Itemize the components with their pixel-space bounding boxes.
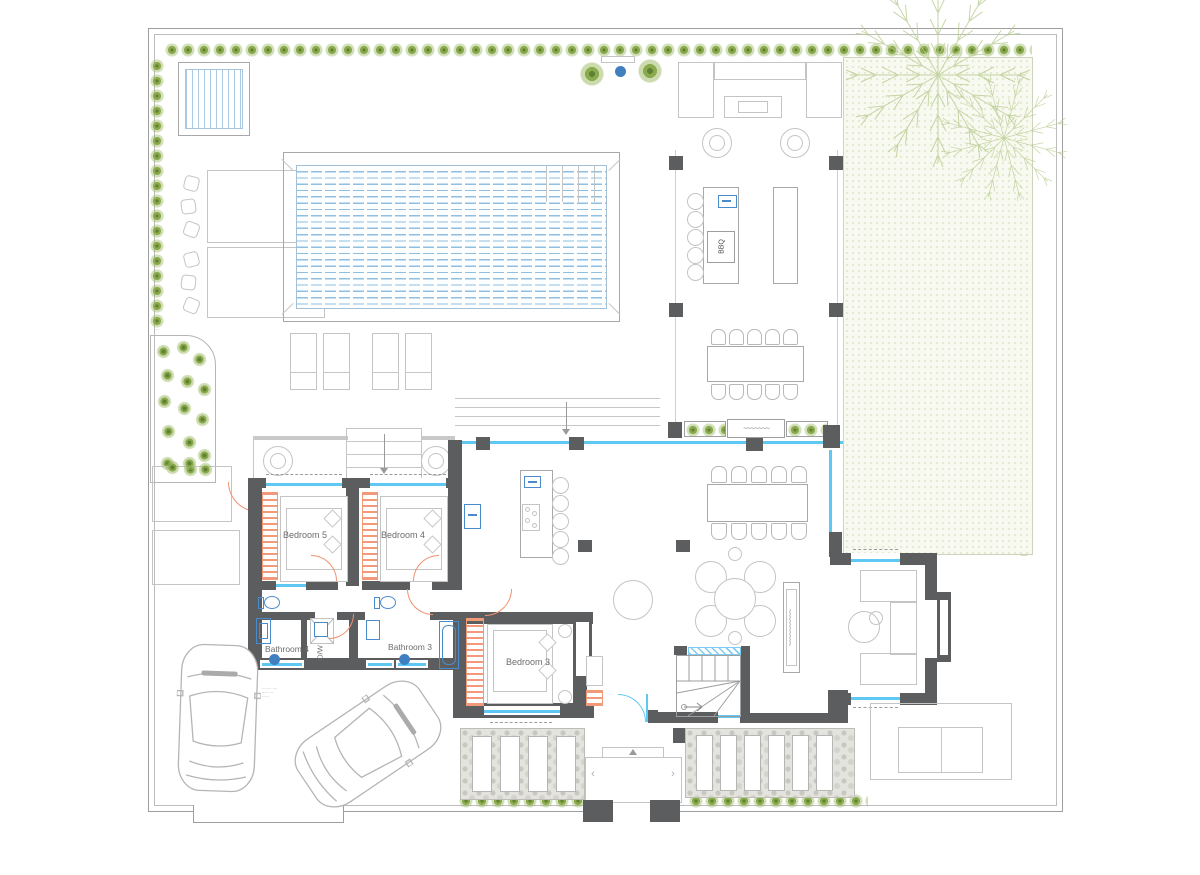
bathroom-vanity (366, 620, 380, 640)
pool-step (562, 166, 563, 202)
lounge-chair (180, 274, 196, 290)
sun-lounger (323, 333, 350, 390)
sofa-section (860, 570, 917, 602)
sun-lounger-backrest (323, 372, 350, 373)
cooktop-burner (525, 507, 530, 512)
glass-wall-east (829, 450, 832, 533)
lounge-chair (180, 198, 197, 215)
planter-box (786, 421, 828, 437)
outdoor-counter (773, 187, 798, 284)
garden-step-line (455, 407, 660, 408)
bedside-table (558, 690, 572, 704)
column (578, 540, 592, 552)
toilet-bowl (380, 596, 396, 609)
shrub-icon (160, 368, 175, 383)
gate-pillar (650, 800, 680, 822)
dining-chair (751, 466, 767, 483)
shrub-icon (192, 352, 207, 367)
bar-stool (552, 495, 569, 512)
shrub-icon (161, 424, 176, 439)
shrub-icon (197, 382, 212, 397)
bathroom3-label: Bathroom 3 (372, 642, 448, 652)
toilet-bowl (264, 596, 280, 609)
dw-label: D/W (316, 639, 325, 667)
shrub-icon (198, 462, 213, 477)
pergola-plank (528, 736, 548, 792)
pergola-plank (792, 735, 809, 791)
window-glass (262, 663, 302, 666)
staircase (676, 655, 742, 717)
dining-chair (791, 466, 807, 483)
car (173, 641, 262, 796)
palm-tree-icon (934, 68, 1074, 208)
garage-annotation: -------- ---- ------ --- ------ (262, 686, 332, 698)
sun-lounger-backrest (405, 372, 432, 373)
side-stool (728, 547, 742, 561)
column (569, 437, 584, 450)
wall-bedroom-east (448, 440, 462, 586)
bar-stool (687, 193, 704, 210)
driveway-gate-jamb (193, 805, 194, 823)
bbq-grill: BBQ (707, 231, 735, 263)
dining-chair (751, 523, 767, 540)
arrow-up-icon (629, 749, 637, 755)
kitchen-sink-faucet (528, 481, 537, 483)
pool-step (578, 166, 579, 202)
column (476, 437, 490, 450)
hedge-row-left (149, 58, 165, 330)
garden-step-line (455, 398, 660, 399)
bar-stool (552, 477, 569, 494)
outdoor-dining-table (707, 346, 804, 382)
wall-stair-top (674, 646, 687, 655)
wall-segment (262, 581, 276, 590)
pool-water (296, 165, 607, 309)
fireplace-squiggle: ~~~~~~~~~~ (787, 593, 795, 663)
shrub-icon (180, 374, 195, 389)
roof-overhang-dashed (266, 474, 342, 475)
colonnade-line (837, 150, 838, 437)
dining-chair (771, 523, 787, 540)
bar-stool (552, 531, 569, 548)
outdoor-sofa-back (714, 62, 806, 80)
sun-lounger (290, 333, 317, 390)
dining-chair (731, 466, 747, 483)
sofa-section (860, 653, 917, 685)
dining-chair (783, 384, 798, 400)
window-glass (266, 483, 342, 486)
dining-chair (711, 466, 727, 483)
entry-door-leaf (646, 694, 648, 722)
terrace-edge (253, 436, 348, 440)
bbq-label: BBQ (719, 235, 726, 259)
dining-chair (747, 384, 762, 400)
bar-stool (552, 548, 569, 565)
pergola-plank (556, 736, 576, 792)
shrub-icon (182, 456, 197, 471)
cooktop-burner (525, 518, 530, 523)
column (669, 303, 683, 317)
window-glass (851, 559, 900, 562)
sun-lounger (372, 333, 399, 390)
pouf (613, 580, 653, 620)
wall-segment (648, 710, 658, 723)
window-glass (368, 663, 392, 666)
cooktop-burner (532, 511, 537, 516)
side-stool (728, 631, 742, 645)
round-lounge-chair-cushion (709, 135, 725, 151)
pergola-plank (816, 735, 833, 791)
window-glass (370, 483, 446, 486)
bush-icon (637, 58, 663, 84)
pergola-plank (500, 736, 520, 792)
shower-drain (399, 654, 410, 665)
wall-oven-handle (468, 514, 477, 516)
sun-lounger (405, 333, 432, 390)
steps-direction-arrow (384, 434, 385, 468)
annotation-line: ------ (262, 694, 332, 698)
patio-table-divider (941, 727, 942, 773)
wall-segment (740, 713, 848, 723)
sofa-section (890, 602, 917, 655)
bar-stool (687, 211, 704, 228)
shrub-icon (176, 340, 191, 355)
dining-chair (711, 329, 726, 345)
entry-closet (586, 656, 603, 686)
storage-pad (152, 466, 232, 522)
garden-step-line (455, 416, 660, 417)
column (746, 438, 763, 451)
bar-stool (687, 247, 704, 264)
pergola-plank (720, 735, 737, 791)
indoor-fireplace-box: ~~~~~~~~~~ (786, 589, 797, 666)
chevron-left-icon: ‹ (588, 768, 598, 780)
window-glass (484, 710, 560, 713)
shrub-icon (177, 401, 192, 416)
dining-chair (711, 384, 726, 400)
pergola-plank (696, 735, 713, 791)
bbq-sink-faucet (722, 200, 731, 202)
round-table (714, 578, 756, 620)
bedroom5-label: Bedroom 5 (260, 530, 350, 540)
roof-overhang-dashed (490, 722, 552, 723)
outdoor-sofa-arm (678, 62, 714, 118)
dining-table (707, 484, 808, 522)
bedroom4-label: Bedroom 4 (358, 530, 448, 540)
window-glass (276, 584, 306, 587)
garden-bench (601, 56, 635, 63)
pergola-plank (768, 735, 785, 791)
shrub-icon (157, 394, 172, 409)
pergola-plank (472, 736, 492, 792)
dining-chair (765, 384, 780, 400)
terrace-edge (253, 440, 254, 482)
sun-lounger-backrest (290, 372, 317, 373)
dining-chair (765, 329, 780, 345)
pool-step (546, 166, 547, 202)
entry-shelves (586, 690, 603, 706)
column (829, 156, 843, 170)
outdoor-coffee-table-inner (738, 101, 768, 113)
column (669, 156, 683, 170)
spa-water (185, 69, 243, 129)
fireplace-squiggle: ~~~~~~~ (743, 424, 769, 433)
pergola-plank (744, 735, 761, 791)
garden-step-line (455, 425, 660, 426)
floor-plan-canvas: BBQ ~~~~~~~ (0, 0, 1200, 875)
wall-corner-block (823, 425, 840, 448)
shrub-icon (156, 344, 171, 359)
dining-chair (791, 523, 807, 540)
planter-box (684, 421, 726, 437)
window-glass (851, 697, 900, 700)
round-lounge-chair-cushion (787, 135, 803, 151)
colonnade-line (675, 150, 676, 437)
arrow-down-icon (562, 429, 570, 435)
wall-segment (362, 581, 410, 590)
round-patio-chair-cushion (270, 453, 286, 469)
dining-chair (731, 523, 747, 540)
wall-stub (673, 728, 685, 743)
shrub-icon (195, 412, 210, 427)
dining-chair (771, 466, 787, 483)
sun-lounger-backrest (372, 372, 399, 373)
roof-overhang-dashed (853, 549, 898, 550)
column (829, 303, 843, 317)
shrub-icon (182, 435, 197, 450)
wall-niche (940, 600, 948, 655)
shrub-icon (197, 448, 212, 463)
gate-pillar (583, 800, 613, 822)
chevron-right-icon: › (668, 768, 678, 780)
wall-segment (432, 581, 462, 590)
dining-chair (747, 329, 762, 345)
shrub-icon (165, 460, 180, 475)
wall-segment (306, 581, 338, 590)
bush-icon (579, 61, 605, 87)
porch-floor (585, 757, 682, 803)
wall-block (573, 685, 587, 718)
coffee-table-round (869, 611, 883, 625)
wall-stair-east (741, 646, 750, 722)
wall-bay-east (925, 553, 937, 600)
cooktop-burner (532, 523, 537, 528)
pool-step (594, 166, 595, 202)
column (676, 540, 690, 552)
outdoor-shower-drain (615, 66, 626, 77)
bar-stool (687, 229, 704, 246)
driveway-gate-threshold (193, 822, 344, 823)
bedside-table (558, 624, 572, 638)
bar-stool (687, 264, 704, 281)
steps-direction-arrow (566, 402, 567, 430)
dining-chair (783, 329, 798, 345)
wall-oven (464, 504, 481, 529)
bar-stool (552, 513, 569, 530)
glass-wall-north (462, 441, 843, 444)
bedroom3-label: Bedroom 3 (486, 657, 570, 667)
outdoor-sofa-arm (806, 62, 842, 118)
storage-pad (152, 530, 240, 585)
dining-chair (729, 384, 744, 400)
outdoor-fireplace: ~~~~~~~ (727, 419, 785, 438)
wall-stub (668, 422, 682, 438)
round-patio-chair-cushion (428, 453, 444, 469)
roof-overhang-dashed (370, 474, 446, 475)
vanity-basin (259, 623, 268, 639)
stair-skylight (688, 647, 741, 655)
dining-chair (729, 329, 744, 345)
wardrobe (466, 618, 484, 706)
dining-chair (711, 523, 727, 540)
utility-sink (314, 622, 328, 637)
shower-drain (269, 654, 280, 665)
